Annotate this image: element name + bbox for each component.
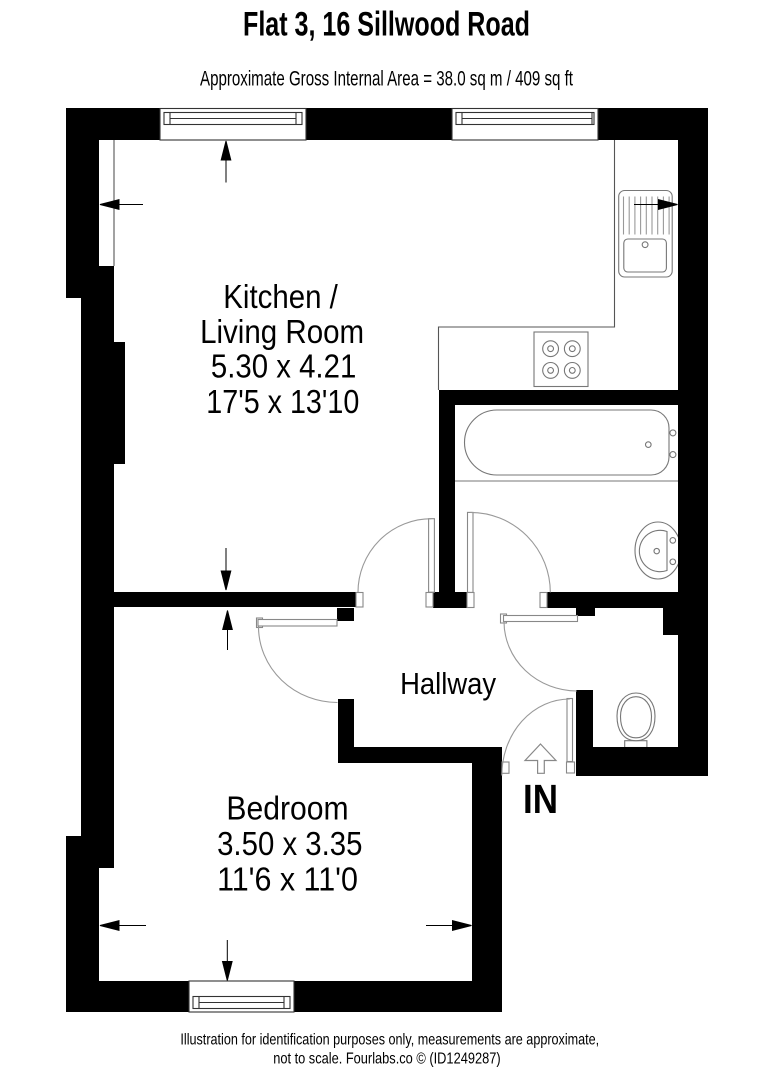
svg-text:Kitchen /: Kitchen / (223, 279, 338, 316)
svg-text:not to scale. Fourlabs.co © (I: not to scale. Fourlabs.co © (ID1249287) (273, 1051, 500, 1068)
svg-text:Living Room: Living Room (200, 314, 364, 351)
svg-text:IN: IN (523, 776, 558, 822)
svg-text:17'5 x 13'10: 17'5 x 13'10 (206, 384, 359, 421)
svg-text:Flat 3, 16 Sillwood Road: Flat 3, 16 Sillwood Road (243, 6, 530, 44)
svg-text:Bedroom: Bedroom (226, 791, 348, 828)
svg-text:11'6 x 11'0: 11'6 x 11'0 (217, 862, 358, 899)
svg-text:Approximate Gross Internal Are: Approximate Gross Internal Area = 38.0 s… (200, 68, 573, 91)
svg-text:3.50 x 3.35: 3.50 x 3.35 (217, 826, 362, 863)
svg-text:Hallway: Hallway (400, 666, 496, 701)
svg-text:Illustration for identificatio: Illustration for identification purposes… (180, 1031, 599, 1048)
svg-text:5.30 x 4.21: 5.30 x 4.21 (211, 349, 356, 386)
